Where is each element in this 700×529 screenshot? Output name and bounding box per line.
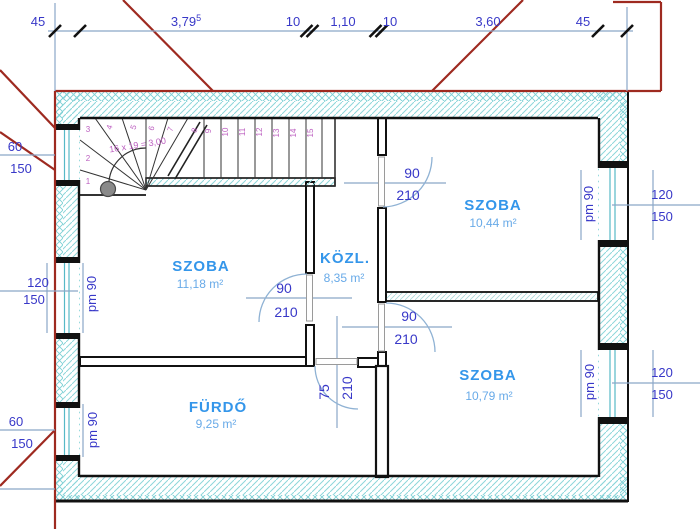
door-leaf-top-right xyxy=(379,157,385,206)
stair-railing xyxy=(146,178,335,186)
dim-left-top-height: 150 xyxy=(10,161,32,176)
dim-top-45-left: 45 xyxy=(31,14,45,29)
stair-number: 1 xyxy=(86,177,91,186)
room-area-kozl: 8,35 m² xyxy=(324,271,365,285)
door-top-right-width: 90 xyxy=(404,165,420,181)
door-leaf-bottom-right xyxy=(379,304,385,351)
dim-right-top-height: 150 xyxy=(651,209,673,224)
dim-right-top-parapet: pm 90 xyxy=(581,186,596,222)
floor-plan-page: 1 2 3 4 5 6 7 8 9 10 11 12 13 14 15 16 x… xyxy=(0,0,700,529)
stair-number: 15 xyxy=(306,128,315,137)
dim-left-bottom-height: 150 xyxy=(11,436,33,451)
dim-top-379: 3,795 xyxy=(171,13,201,29)
stair-number: 3 xyxy=(86,125,91,134)
room-area-szoba-bottom-right: 10,79 m² xyxy=(465,389,512,403)
dim-top-45-right: 45 xyxy=(576,14,590,29)
dim-right-bottom-height: 150 xyxy=(651,387,673,402)
dim-left-mid-width: 120 xyxy=(27,275,49,290)
room-area-furdo: 9,25 m² xyxy=(196,417,237,431)
door-bathroom-height: 210 xyxy=(339,376,355,400)
door-leaf-left xyxy=(307,275,313,321)
window-right-top xyxy=(599,168,627,240)
staircase: 1 2 3 4 5 6 7 8 9 10 11 12 13 14 15 16 x… xyxy=(80,118,335,197)
dim-left-top-width: 60 xyxy=(8,139,22,154)
dim-top-10-right: 10 xyxy=(383,14,397,29)
stair-number: 14 xyxy=(289,128,298,137)
stair-number: 4 xyxy=(105,123,115,131)
room-name-szoba-bottom-right: SZOBA xyxy=(459,367,517,384)
dim-top-360: 3,60 xyxy=(475,14,500,29)
stair-numbers: 1 2 3 4 5 6 7 8 9 10 11 12 13 14 15 xyxy=(86,123,315,186)
dim-top-10-left: 10 xyxy=(286,14,300,29)
door-bathroom-width: 75 xyxy=(316,384,332,400)
dim-left-bottom-width: 60 xyxy=(9,414,23,429)
stair-newel-post xyxy=(101,182,116,197)
door-bottom-right-height: 210 xyxy=(394,331,418,347)
dimension-lines xyxy=(0,3,700,489)
roof-hip-upper-left xyxy=(0,70,55,128)
texts: 45 3,795 10 1,10 10 3,60 45 60 150 120 1… xyxy=(8,13,673,451)
stair-number: 11 xyxy=(238,127,247,136)
window-left-bottom xyxy=(56,408,79,455)
stair-number: 6 xyxy=(147,124,157,132)
stair-number: 12 xyxy=(255,127,264,136)
dim-right-top-width: 120 xyxy=(651,187,673,202)
dim-left-bottom-parapet: pm 90 xyxy=(85,412,100,448)
door-left-height: 210 xyxy=(274,304,298,320)
room-name-szoba-left: SZOBA xyxy=(172,258,230,275)
door-bottom-right-width: 90 xyxy=(401,308,417,324)
door-left-width: 90 xyxy=(276,280,292,296)
dim-right-bottom-width: 120 xyxy=(651,365,673,380)
door-leaf-bathroom xyxy=(316,359,357,365)
room-area-szoba-top-right: 10,44 m² xyxy=(469,216,516,230)
stair-number: 9 xyxy=(204,128,213,133)
window-left-middle xyxy=(56,263,79,333)
stair-number: 2 xyxy=(86,154,91,163)
dim-left-mid-parapet: pm 90 xyxy=(84,276,99,312)
dim-top-110: 1,10 xyxy=(330,14,355,29)
door-top-right-height: 210 xyxy=(396,187,420,203)
dim-right-bottom-parapet: pm 90 xyxy=(582,364,597,400)
room-name-szoba-top-right: SZOBA xyxy=(464,197,522,214)
stair-number: 10 xyxy=(221,127,230,136)
stair-number: 7 xyxy=(166,125,176,133)
room-area-szoba-left: 11,18 m² xyxy=(177,277,223,291)
floor-plan-drawing: 1 2 3 4 5 6 7 8 9 10 11 12 13 14 15 16 x… xyxy=(0,0,700,529)
room-name-furdo: FÜRDŐ xyxy=(189,398,247,416)
stair-number: 8 xyxy=(190,126,200,134)
window-left-top xyxy=(56,130,79,180)
dim-left-mid-height: 150 xyxy=(23,292,45,307)
stair-number: 13 xyxy=(272,128,281,137)
stair-number: 5 xyxy=(129,123,139,131)
room-name-kozl: KÖZL. xyxy=(320,250,370,267)
